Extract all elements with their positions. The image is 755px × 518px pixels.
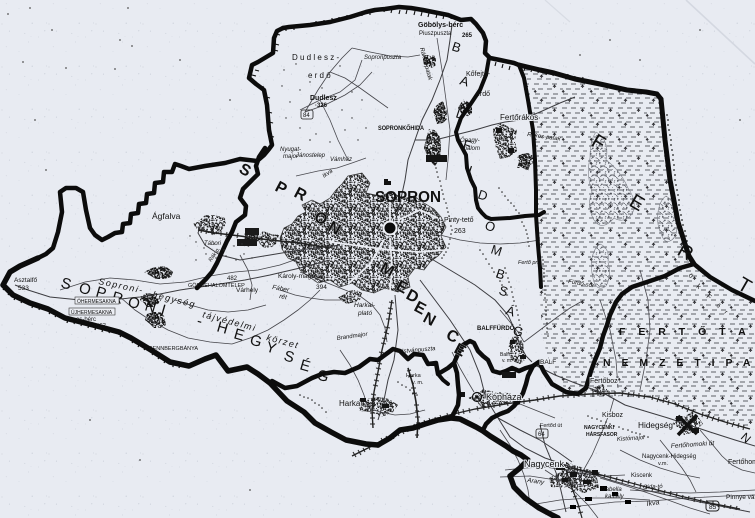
svg-text:Hidegség: Hidegség (638, 421, 673, 430)
svg-text:Pinty-tető: Pinty-tető (444, 217, 474, 224)
svg-text:Fertő pr.: Fertő pr. (518, 260, 539, 266)
svg-text:D u d l e s z -: D u d l e s z - (292, 53, 339, 62)
svg-text:major: major (283, 154, 299, 160)
svg-text:v. m.: v. m. (412, 380, 424, 386)
svg-text:Nyugat-: Nyugat- (280, 147, 301, 153)
svg-text:85: 85 (709, 504, 717, 511)
svg-text:263: 263 (454, 228, 466, 235)
svg-text:BALF: BALF (540, 359, 556, 366)
svg-text:Fertőhom: Fertőhom (728, 459, 755, 466)
svg-text:Harka: Harka (406, 373, 422, 379)
svg-text:SOPRONKŐHIDA: SOPRONKŐHIDA (378, 125, 425, 132)
svg-text:394: 394 (316, 284, 327, 291)
svg-text:Tábori: Tábori (204, 241, 222, 247)
svg-text:Asztalfő: Asztalfő (14, 277, 38, 284)
svg-text:Göbölys-bérc: Göbölys-bérc (418, 22, 463, 29)
svg-text:Dudlesz: Dudlesz (310, 95, 337, 102)
svg-text:as-bérc: as-bérc (76, 317, 96, 323)
svg-text:Gida-tó: Gida-tó (643, 484, 664, 491)
svg-text:Várhely: Várhely (236, 287, 259, 294)
svg-text:HÁRSFASOR: HÁRSFASOR (586, 431, 618, 438)
svg-text:NAGYCENKI: NAGYCENKI (584, 425, 615, 431)
svg-text:ÚJHERMESAKNA: ÚJHERMESAKNA (71, 309, 113, 316)
svg-text:Fertőboz: Fertőboz (590, 378, 618, 385)
svg-text:e r d ő: e r d ő (308, 71, 331, 80)
svg-text:Fertőrákos: Fertőrákos (500, 113, 538, 122)
svg-text:(557: (557 (94, 324, 107, 330)
svg-text:v.m.: v.m. (658, 461, 668, 467)
svg-text:N E M Z E T I P A R: N E M Z E T I P A R (603, 357, 755, 369)
svg-text:Kisboz: Kisboz (602, 412, 624, 419)
svg-text:64: 64 (538, 432, 545, 438)
svg-text:Harkai-: Harkai- (354, 302, 376, 309)
svg-text:·326: ·326 (315, 103, 328, 109)
svg-text:Kópháza: Kópháza (486, 392, 522, 402)
svg-text:Pinnye vá: Pinnye vá (726, 494, 755, 501)
svg-text:v. m.: v. m. (502, 358, 512, 364)
svg-text:kastély: kastély (605, 494, 625, 500)
svg-text:Nagycenk: Nagycenk (524, 459, 565, 469)
svg-text:Vámház: Vámház (330, 157, 352, 163)
svg-text:Nagycenk-Hidegség: Nagycenk-Hidegség (642, 454, 696, 460)
svg-text:482: 482 (227, 276, 238, 282)
svg-text:Jánostelep: Jánostelep (295, 153, 326, 159)
svg-text:265: 265 (462, 33, 473, 39)
svg-text:Fertőd út: Fertőd út (540, 423, 562, 429)
svg-text:plató: plató (357, 310, 372, 317)
svg-text:erdő: erdő (476, 91, 490, 98)
svg-text:F E R T Ő T A V I: F E R T Ő T A V I (619, 325, 755, 338)
svg-text:Harka: Harka (339, 399, 361, 408)
svg-text:ÓHERMESAKNA: ÓHERMESAKNA (77, 298, 117, 305)
svg-text:Károly-magaslat: Károly-magaslat (278, 273, 325, 280)
svg-text:533: 533 (18, 285, 29, 292)
svg-text:Kiscenk: Kiscenk (631, 473, 653, 479)
svg-text:BRENNBERGBÁNYA: BRENNBERGBÁNYA (145, 345, 198, 352)
svg-text:Ágfalva: Ágfalva (152, 211, 181, 221)
svg-text:SOPRON: SOPRON (375, 189, 441, 206)
svg-text:Izabella: Izabella (601, 487, 622, 493)
svg-text:Sopronpuszta: Sopronpuszta (364, 55, 402, 61)
svg-text:BALFFÜRDŐ: BALFFÜRDŐ (477, 325, 515, 332)
svg-text:84: 84 (303, 113, 310, 119)
svg-text:Piuszpuszta: Piuszpuszta (419, 31, 452, 37)
